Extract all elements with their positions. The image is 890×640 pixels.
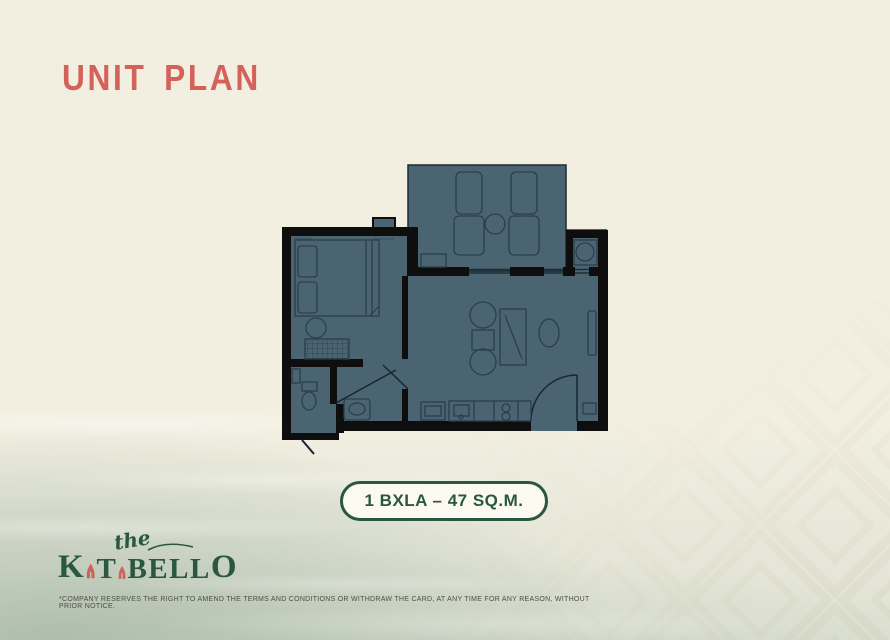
logo-letters-bell: BELL xyxy=(127,555,210,584)
unit-type-badge: 1 BXLA – 47 SQ.M. xyxy=(340,481,548,521)
wardrobe-icon xyxy=(305,339,349,359)
surfboard-a-icon xyxy=(86,559,95,583)
logo-the-row: the xyxy=(114,528,204,551)
unit-type-label: 1 BXLA – 47 SQ.M. xyxy=(364,491,523,511)
main-entry-door-icon xyxy=(302,440,314,454)
floor-plan xyxy=(282,163,610,455)
unit-plan-slide: UNIT PLAN xyxy=(0,0,890,640)
swash-stroke-icon xyxy=(147,541,197,553)
logo-wordmark: K T BELL O xyxy=(58,551,238,584)
page-title: UNIT PLAN xyxy=(62,57,261,99)
disclaimer-text: *COMPANY RESERVES THE RIGHT TO AMEND THE… xyxy=(59,596,599,610)
logo-letter-k: K xyxy=(58,551,85,584)
katabello-logo: the K T BELL O xyxy=(58,528,238,584)
logo-letter-t: T xyxy=(97,555,118,584)
surfboard-a-icon xyxy=(118,562,126,583)
logo-letter-o: O xyxy=(211,551,238,584)
wall-ledge xyxy=(373,218,395,228)
